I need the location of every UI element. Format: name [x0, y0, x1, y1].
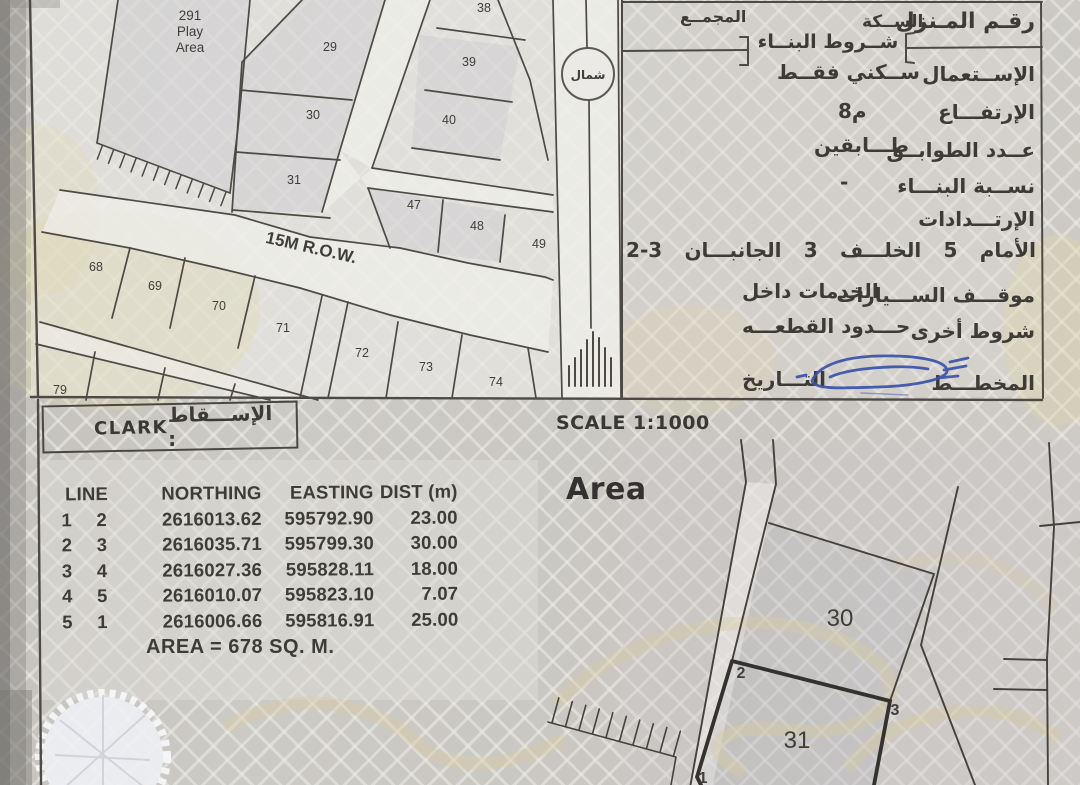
cell-northing: 2616010.07: [122, 582, 262, 608]
cell-northing: 2616027.36: [122, 556, 262, 582]
cell-dist: 30.00: [374, 530, 458, 556]
setbacks-values-row: الأمام 5 الخلـــف 3 الجانبـــان 2-3: [626, 238, 1036, 262]
scale-text: SCALE 1:1000: [556, 412, 710, 434]
cell-to: 2: [82, 506, 122, 532]
height-value: 8م: [838, 99, 867, 123]
area-note: AREA = 678 SQ. M.: [146, 636, 334, 659]
street-label: الســكة: [862, 12, 923, 32]
cell-dist: 23.00: [374, 504, 458, 530]
building-conditions-title: شــروط البنــاء: [750, 31, 906, 53]
cell-dist: 18.00: [374, 555, 458, 581]
projection-label: الإســـقاط :: [167, 401, 284, 451]
cell-easting: 595792.90: [262, 505, 374, 531]
other-conditions-label: شروط أخرى: [911, 319, 1035, 343]
setback-back-value: 3: [804, 238, 818, 262]
detail-area-title: Area: [566, 472, 647, 507]
complex-label: المجمــع: [680, 7, 746, 26]
header-easting: EASTING: [261, 479, 373, 505]
cell-to: 4: [82, 557, 122, 583]
cell-easting: 595828.11: [262, 556, 374, 582]
cell-to: 3: [82, 532, 122, 558]
building-ratio-value: -: [840, 170, 848, 194]
cell-northing: 2616006.66: [122, 607, 262, 633]
cell-easting: 595816.91: [262, 607, 374, 633]
setback-back-label: الخلـــف: [840, 238, 921, 262]
cell-dist: 25.00: [374, 606, 458, 632]
usage-label: الإســتعمال: [922, 62, 1035, 86]
cell-from: 3: [52, 558, 82, 584]
setback-front-label: الأمام: [980, 238, 1036, 262]
date-label: التـــاريخ: [742, 367, 826, 391]
cell-northing: 2616013.62: [122, 505, 262, 531]
header-dist: DIST (m): [373, 479, 457, 505]
setback-front-value: 5: [944, 238, 958, 262]
usage-value: ســكني فقــط: [777, 60, 920, 84]
height-label: الإرتفـــاع: [938, 100, 1035, 124]
table-row: 3 4 2616027.36 595828.11 18.00: [52, 555, 462, 583]
table-header-row: LINE NORTHING EASTING DIST (m): [51, 479, 461, 507]
table-row: 4 5 2616010.07 595823.10 7.07: [52, 581, 462, 609]
table-row: 2 3 2616035.71 595799.30 30.00: [52, 530, 462, 558]
header-northing: NORTHING: [121, 480, 261, 506]
plan-label: المخطـــط: [931, 371, 1035, 395]
cell-dist: 7.07: [374, 581, 458, 607]
projection-value: CLARK: [94, 417, 168, 439]
cell-easting: 595799.30: [262, 530, 374, 556]
setbacks-label: الإرتـــدادات: [918, 207, 1035, 231]
setback-sides-label: الجانبـــان: [684, 238, 781, 262]
scanned-land-survey-document: { "info_panel": { "house_number_label": …: [0, 0, 1080, 785]
floors-value: طـــابقين: [814, 133, 909, 157]
cell-to: 1: [82, 608, 122, 634]
parking-value: الخدمات داخل: [742, 279, 879, 303]
other-conditions-value: حـــدود القطعـــه: [742, 314, 910, 338]
table-row: 5 1 2616006.66 595816.91 25.00: [52, 606, 462, 634]
header-line: LINE: [51, 481, 121, 507]
cell-from: 2: [52, 532, 82, 558]
cell-from: 5: [52, 609, 82, 635]
cell-easting: 595823.10: [262, 581, 374, 607]
cell-to: 5: [82, 583, 122, 609]
cell-northing: 2616035.71: [122, 531, 262, 557]
setback-sides-value: 2-3: [626, 238, 662, 262]
projection-box: CLARK الإســـقاط :: [42, 401, 299, 454]
building-ratio-label: نســبة البنـــاء: [897, 174, 1035, 198]
cell-from: 1: [52, 507, 82, 533]
table-row: 1 2 2616013.62 595792.90 23.00: [52, 504, 462, 532]
coordinates-table: LINE NORTHING EASTING DIST (m) 1 2 26160…: [51, 479, 462, 635]
cell-from: 4: [52, 583, 82, 609]
building-conditions-panel: رقـم المـنزل الســكة المجمــع شــروط الب…: [622, 0, 1080, 398]
